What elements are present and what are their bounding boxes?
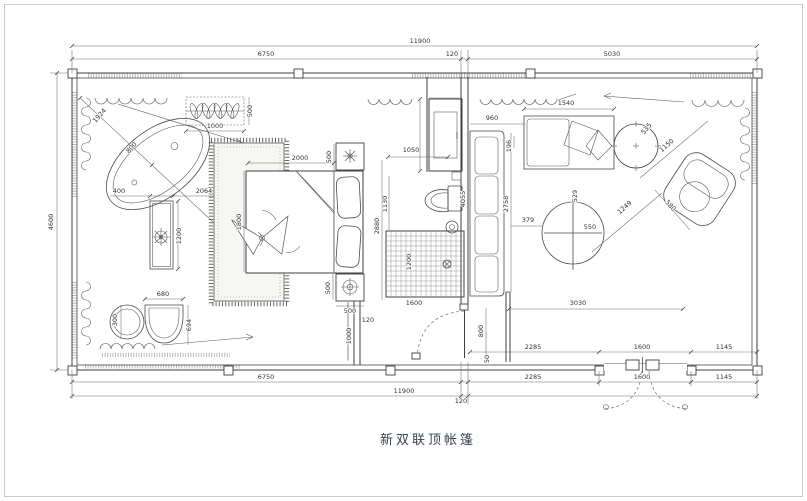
dim-nightstand-top-depth: 500 (325, 151, 333, 163)
dim-vanity-to-bed: 2064 (196, 187, 213, 195)
dim-wall-top: 120 (446, 50, 458, 58)
dim-long-sofa-length: 2758 (502, 196, 510, 213)
dim-bathroom-width: 1050 (403, 146, 420, 154)
dim-bottom-inner-left: 2285 (525, 343, 542, 351)
dim-vanity-width: 400 (113, 187, 125, 195)
dim-bed-width: 1800 (235, 214, 243, 231)
dim-right-bay-top: 5030 (604, 50, 621, 58)
dim-vanity-length: 1200 (175, 228, 183, 245)
dim-nightstand-bottom-depth: 500 (324, 282, 332, 294)
dim-living-span: 3030 (570, 299, 587, 307)
dim-entry-gap: 50 (483, 355, 491, 363)
dim-wall-bottom: 120 (455, 397, 467, 405)
dim-entry-door-width: 800 (477, 325, 485, 337)
dim-table-to-sofa: 529 (571, 190, 579, 202)
dim-toilet-zone: 1130 (381, 196, 389, 213)
dim-rack-width: 1000 (207, 122, 224, 130)
dim-table-to-wall: 379 (522, 216, 534, 224)
floorplan-drawing: 11900 6750 120 5030 4600 1924 800 1000 5… (0, 0, 807, 501)
nightstand-bottom (336, 274, 364, 301)
dim-sofa-offset: 960 (486, 114, 498, 122)
dim-bottom-inner-right: 1145 (716, 343, 733, 351)
dim-chair-width: 680 (157, 290, 169, 298)
dim-chair-depth: 694 (185, 319, 193, 331)
dim-shower-width: 1600 (406, 299, 423, 307)
dim-stool: 300 (111, 314, 119, 326)
dim-bottom-outer-door: 1600 (634, 373, 651, 381)
dim-sofa-gap: 196 (505, 140, 513, 152)
dim-bathroom-length: 2880 (373, 218, 381, 235)
dim-stub-wall-thickness: 120 (362, 316, 374, 324)
dim-shower-depth: 1200 (405, 254, 413, 271)
dim-round-table-radius: 550 (584, 223, 596, 231)
dim-left-bay-top: 6750 (258, 50, 275, 58)
dim-divider-length: 4055 (459, 191, 467, 208)
dim-bottom-outer-left: 2285 (525, 373, 542, 381)
double-bed (232, 171, 363, 273)
dim-chaise-width: 1540 (558, 99, 575, 107)
dim-bottom-inner-door: 1600 (634, 343, 651, 351)
dim-stub-wall-length: 1000 (345, 328, 353, 345)
floorplan-canvas: 11900 6750 120 5030 4600 1924 800 1000 5… (0, 0, 807, 501)
dim-overall-height: 4600 (47, 214, 55, 231)
dim-rack-depth: 500 (246, 105, 254, 117)
dim-nightstand-bottom-width: 500 (344, 307, 356, 315)
dim-overall-width-bottom: 11900 (394, 387, 415, 395)
dim-bottom-left-bay: 6750 (258, 373, 275, 381)
dim-bottom-outer-right: 1145 (716, 373, 733, 381)
nightstand-top (336, 143, 364, 170)
dim-overall-width-top: 11900 (410, 37, 431, 45)
dim-bed-length: 2000 (292, 154, 309, 162)
drawing-caption: 新双联顶帐篷 (380, 432, 476, 448)
